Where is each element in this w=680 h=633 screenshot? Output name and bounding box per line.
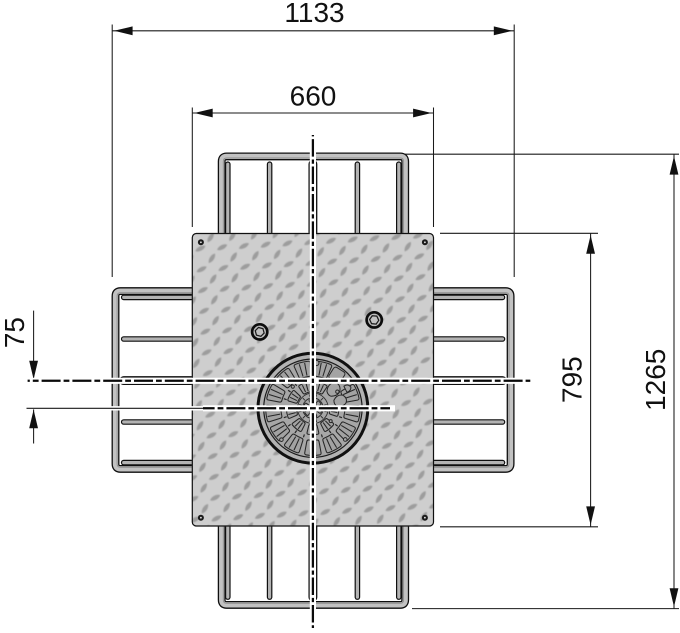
svg-text:75: 75 bbox=[0, 317, 30, 348]
svg-text:795: 795 bbox=[556, 356, 587, 403]
svg-text:1133: 1133 bbox=[284, 0, 344, 28]
svg-text:660: 660 bbox=[290, 80, 337, 111]
svg-text:1265: 1265 bbox=[640, 349, 671, 411]
